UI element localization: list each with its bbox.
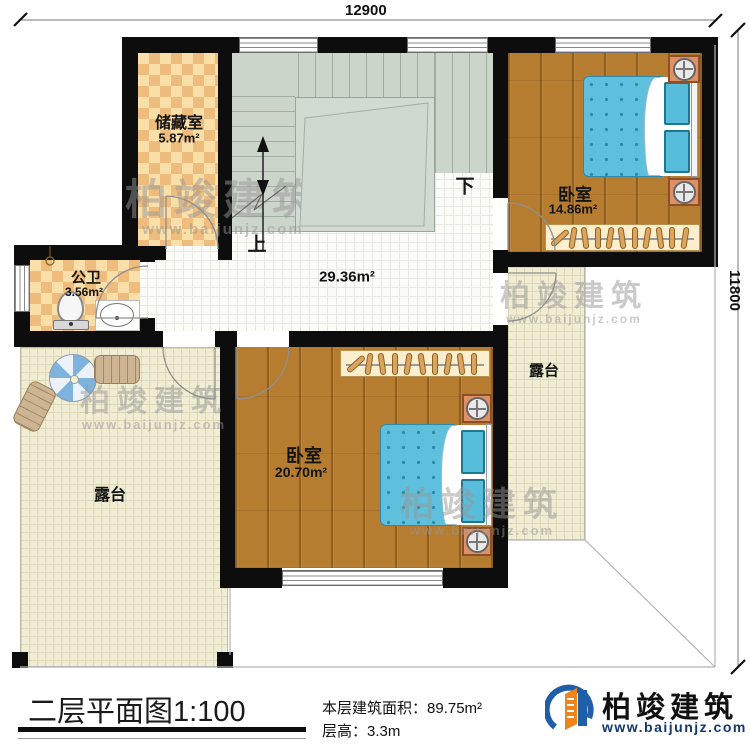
bed1-nightstand-bottom bbox=[668, 178, 700, 206]
brand-url: www.baijunjz.com bbox=[602, 719, 747, 735]
terrace-post bbox=[217, 652, 233, 668]
bedroom1-area: 14.86m² bbox=[549, 202, 597, 217]
wall-bedroom2-bottom-b bbox=[443, 568, 508, 588]
hanger-icon bbox=[680, 226, 689, 249]
wall-east-2 bbox=[493, 250, 508, 273]
bed1-pillow-bottom bbox=[664, 130, 690, 173]
wall-south-1 bbox=[14, 331, 163, 347]
watermark: 柏竣建筑 www.baijunjz.com bbox=[400, 488, 564, 537]
wall-top-2 bbox=[318, 37, 407, 53]
hanger-icon bbox=[655, 226, 664, 249]
lounge-chair-icon bbox=[94, 355, 140, 384]
dimension-right: 11800 bbox=[726, 270, 743, 311]
hanger-icon bbox=[432, 353, 438, 375]
wall-storage-bottom-stub bbox=[218, 246, 232, 260]
wall-bedroom1-bottom bbox=[508, 252, 718, 267]
wall-top-1 bbox=[122, 37, 239, 53]
hanger-icon bbox=[595, 227, 601, 249]
window-bedroom2 bbox=[282, 570, 443, 586]
plan-title-text: 二层平面图 bbox=[28, 696, 173, 728]
storage-room-area: 5.87m² bbox=[158, 131, 199, 146]
sink-faucet-icon bbox=[115, 316, 119, 320]
bed1-pillow-top bbox=[664, 82, 690, 125]
terrace-post bbox=[12, 652, 28, 668]
bedroom2-wardrobe bbox=[340, 350, 490, 377]
wall-bathroom-right-a bbox=[140, 246, 155, 262]
title-underline-thin bbox=[18, 738, 306, 739]
watermark: 柏竣建筑 www.baijunjz.com bbox=[500, 281, 648, 325]
stair-treads-top bbox=[298, 53, 435, 98]
floor-area-label: 本层建筑面积： bbox=[322, 700, 427, 717]
hanger-icon bbox=[568, 226, 577, 249]
dimension-top: 12900 bbox=[345, 2, 387, 19]
toilet-button-icon bbox=[69, 322, 73, 326]
bedroom1-closet bbox=[545, 224, 700, 251]
umbrella-center-icon bbox=[70, 375, 79, 384]
floor-height-value: 3.3m bbox=[367, 723, 400, 740]
wall-south-3 bbox=[289, 331, 508, 347]
floor-height-line: 层高：3.3m bbox=[322, 720, 400, 741]
hanger-icon bbox=[632, 227, 638, 249]
title-underline-thick bbox=[18, 727, 306, 732]
floor-plan-canvas: 柏竣建筑 www.baijunjz.com 柏竣建筑 www.baijunjz.… bbox=[0, 0, 750, 745]
window-top-2 bbox=[407, 37, 488, 53]
lamp-icon bbox=[673, 181, 696, 204]
bed1-nightstand-top bbox=[668, 55, 700, 83]
watermark: 柏竣建筑 www.baijunjz.com bbox=[125, 178, 321, 238]
stairs-up-label: 上 bbox=[247, 230, 266, 257]
bed2-pillow-top bbox=[461, 430, 485, 474]
terrace-left-label: 露台 bbox=[94, 481, 126, 505]
stairs-down-label: 下 bbox=[455, 172, 474, 199]
floor-area-value: 89.75m² bbox=[427, 700, 482, 717]
wall-bedroom1-right bbox=[702, 37, 718, 267]
lamp-icon bbox=[466, 397, 489, 420]
bathroom-area: 3.56m² bbox=[65, 285, 103, 299]
storage-room-label: 储藏室 bbox=[155, 109, 203, 133]
hanger-icon bbox=[417, 352, 426, 375]
wall-east-3 bbox=[493, 325, 508, 588]
watermark: 柏竣建筑 www.baijunjz.com bbox=[80, 386, 228, 431]
plan-scale: 1:100 bbox=[173, 696, 246, 728]
wall-bedroom2-left bbox=[220, 331, 235, 588]
floor-area-line: 本层建筑面积：89.75m² bbox=[322, 697, 482, 718]
wall-east-1 bbox=[493, 37, 508, 198]
wall-bathroom-left-a bbox=[14, 245, 30, 265]
stair-treads-right bbox=[435, 53, 493, 173]
floor-height-label: 层高： bbox=[322, 723, 367, 740]
hanger-icon bbox=[669, 227, 675, 249]
plan-title: 二层平面图1:100 bbox=[28, 688, 246, 730]
brand-logo-icon bbox=[545, 680, 597, 740]
window-bathroom bbox=[14, 265, 30, 312]
bed1-headboard bbox=[691, 76, 698, 177]
terrace-right-label: 露台 bbox=[529, 360, 559, 381]
lamp-icon bbox=[673, 58, 696, 81]
bedroom2-area: 20.70m² bbox=[275, 464, 327, 480]
window-top-1 bbox=[239, 37, 318, 53]
window-top-3 bbox=[555, 37, 651, 53]
hanger-icon bbox=[392, 353, 398, 375]
sink-icon bbox=[100, 303, 134, 327]
hanger-icon bbox=[471, 353, 477, 375]
wall-bathroom-top bbox=[14, 245, 122, 260]
bed2-nightstand-top bbox=[462, 394, 492, 423]
wall-bedroom2-bottom-a bbox=[220, 568, 282, 588]
hallway-area: 29.36m² bbox=[319, 269, 375, 286]
hanger-icon bbox=[364, 352, 373, 375]
